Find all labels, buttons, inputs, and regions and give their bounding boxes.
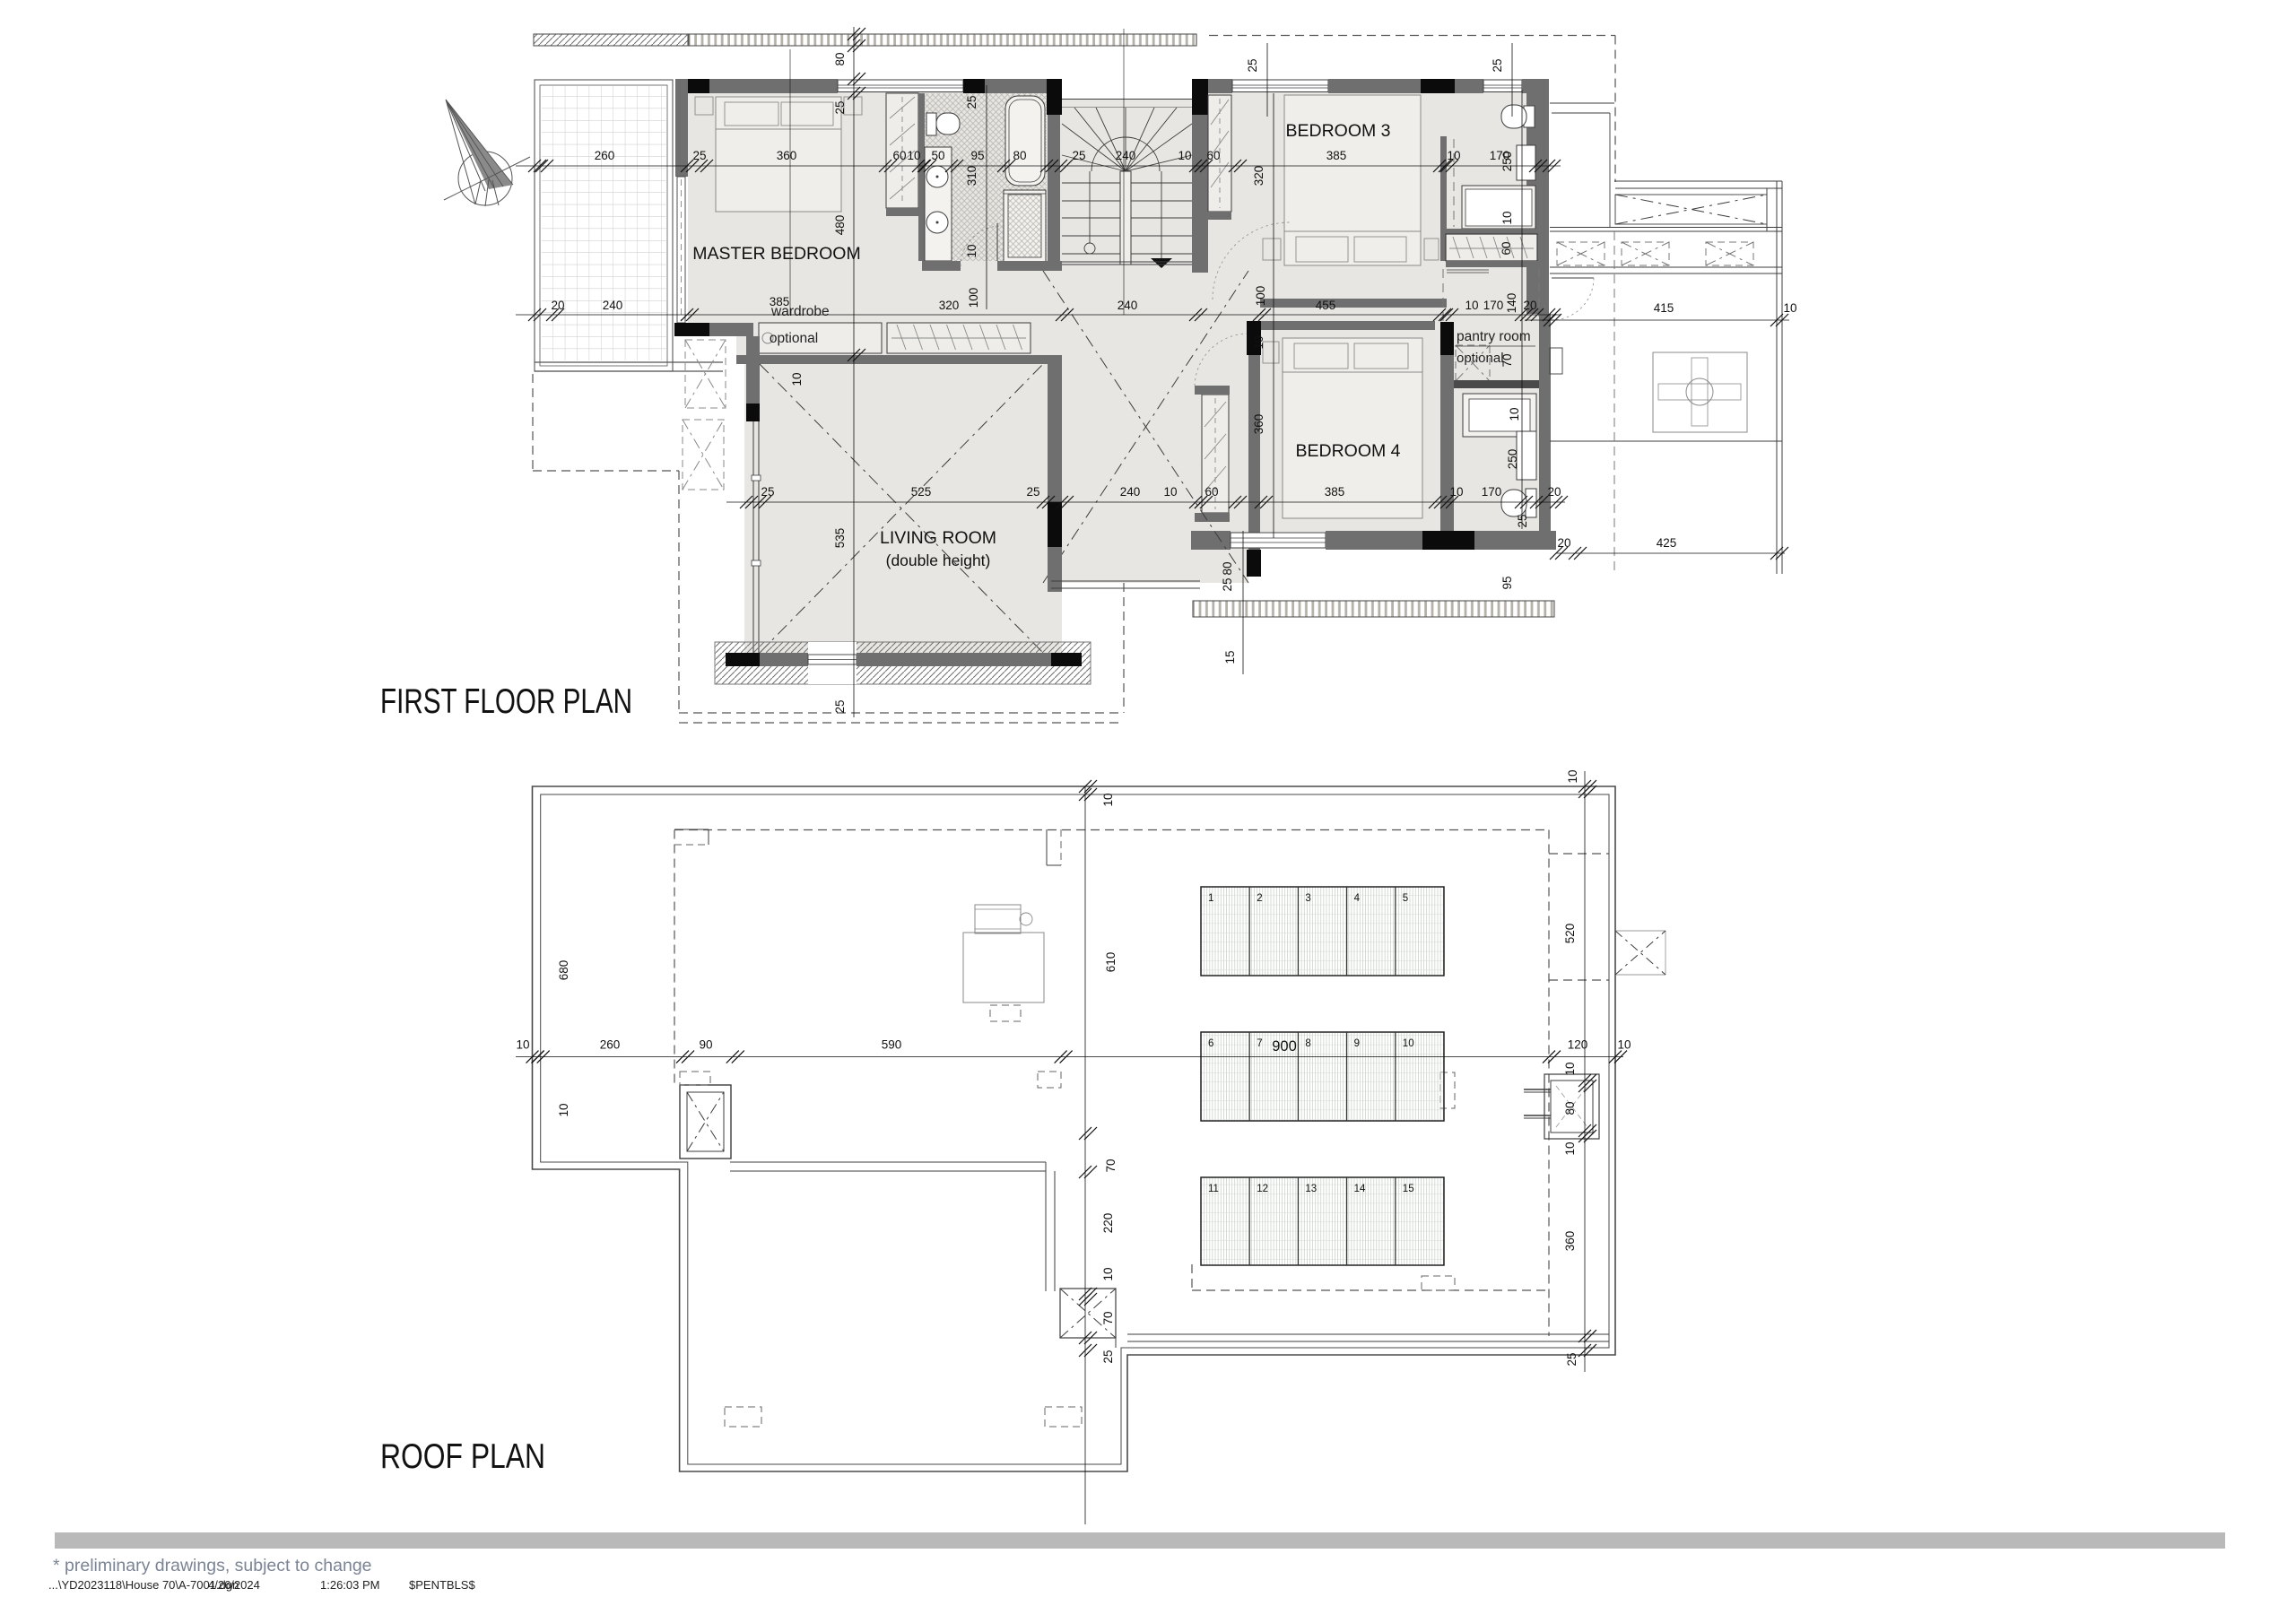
svg-text:25: 25 bbox=[761, 485, 774, 499]
svg-text:80: 80 bbox=[833, 52, 847, 65]
svg-text:60: 60 bbox=[1205, 485, 1218, 499]
svg-text:240: 240 bbox=[1118, 299, 1138, 312]
svg-text:80: 80 bbox=[1221, 561, 1234, 575]
svg-text:25: 25 bbox=[1221, 577, 1234, 591]
svg-text:385: 385 bbox=[1326, 149, 1347, 162]
svg-text:3: 3 bbox=[1305, 893, 1310, 904]
svg-text:70: 70 bbox=[1104, 1159, 1118, 1172]
svg-text:25: 25 bbox=[833, 100, 847, 114]
svg-text:10: 10 bbox=[1617, 1038, 1631, 1052]
svg-text:10: 10 bbox=[907, 149, 920, 162]
svg-text:10: 10 bbox=[1447, 149, 1460, 162]
svg-text:10: 10 bbox=[1566, 769, 1579, 783]
svg-text:680: 680 bbox=[557, 960, 570, 981]
svg-text:95: 95 bbox=[970, 149, 984, 162]
svg-text:250: 250 bbox=[1500, 152, 1514, 172]
svg-text:11: 11 bbox=[1208, 1184, 1219, 1194]
svg-text:10: 10 bbox=[557, 1103, 570, 1116]
svg-text:240: 240 bbox=[1120, 485, 1141, 499]
svg-text:25: 25 bbox=[1026, 485, 1039, 499]
svg-text:25: 25 bbox=[833, 699, 847, 713]
svg-text:525: 525 bbox=[911, 485, 932, 499]
svg-text:1:26:03 PM: 1:26:03 PM bbox=[320, 1578, 380, 1592]
svg-text:LIVING ROOM: LIVING ROOM bbox=[880, 528, 996, 548]
svg-text:25: 25 bbox=[1101, 1350, 1115, 1363]
svg-text:* preliminary drawings, subjec: * preliminary drawings, subject to chang… bbox=[53, 1556, 372, 1575]
svg-text:170: 170 bbox=[1482, 485, 1502, 499]
svg-text:60: 60 bbox=[892, 149, 906, 162]
svg-text:9: 9 bbox=[1354, 1038, 1360, 1049]
svg-text:60: 60 bbox=[1500, 241, 1513, 255]
svg-text:7: 7 bbox=[1257, 1038, 1262, 1049]
svg-text:50: 50 bbox=[931, 149, 944, 162]
svg-text:590: 590 bbox=[882, 1038, 902, 1052]
svg-text:13: 13 bbox=[1305, 1184, 1317, 1194]
svg-text:360: 360 bbox=[1563, 1231, 1577, 1252]
svg-text:90: 90 bbox=[699, 1038, 712, 1052]
svg-text:optional: optional bbox=[770, 331, 818, 346]
svg-text:4: 4 bbox=[1354, 893, 1361, 904]
svg-text:10: 10 bbox=[516, 1038, 529, 1052]
svg-text:20: 20 bbox=[1557, 536, 1570, 550]
svg-text:455: 455 bbox=[1316, 299, 1336, 312]
svg-text:pantry room: pantry room bbox=[1457, 329, 1531, 344]
svg-text:25: 25 bbox=[692, 149, 706, 162]
svg-text:240: 240 bbox=[603, 299, 623, 312]
svg-text:80: 80 bbox=[1563, 1101, 1577, 1115]
svg-text:240: 240 bbox=[1116, 149, 1136, 162]
svg-text:250: 250 bbox=[1506, 449, 1519, 470]
svg-text:MASTER BEDROOM: MASTER BEDROOM bbox=[692, 244, 860, 264]
svg-text:10: 10 bbox=[1163, 485, 1177, 499]
svg-text:320: 320 bbox=[939, 299, 960, 312]
svg-text:25: 25 bbox=[1565, 1352, 1578, 1366]
svg-text:70: 70 bbox=[1101, 1311, 1115, 1324]
svg-text:20: 20 bbox=[1547, 485, 1561, 499]
svg-text:1: 1 bbox=[1208, 893, 1213, 904]
svg-text:20: 20 bbox=[1523, 299, 1536, 312]
svg-text:360: 360 bbox=[1252, 414, 1265, 435]
svg-text:520: 520 bbox=[1563, 924, 1577, 944]
svg-text:FIRST FLOOR PLAN: FIRST FLOOR PLAN bbox=[380, 682, 632, 721]
svg-text:10: 10 bbox=[1101, 793, 1115, 806]
svg-text:80: 80 bbox=[1013, 149, 1026, 162]
svg-text:385: 385 bbox=[1325, 485, 1345, 499]
svg-text:10: 10 bbox=[1178, 149, 1191, 162]
svg-text:25: 25 bbox=[1072, 149, 1085, 162]
svg-text:260: 260 bbox=[595, 149, 615, 162]
svg-text:5: 5 bbox=[1403, 893, 1408, 904]
svg-text:320: 320 bbox=[1252, 166, 1265, 187]
svg-text:$PENTBLS$: $PENTBLS$ bbox=[409, 1578, 475, 1592]
svg-text:100: 100 bbox=[967, 288, 980, 308]
svg-text:535: 535 bbox=[833, 528, 847, 549]
svg-text:10: 10 bbox=[965, 244, 978, 257]
svg-text:10: 10 bbox=[1563, 1062, 1577, 1075]
svg-text:15: 15 bbox=[1223, 650, 1237, 664]
svg-text:25: 25 bbox=[1516, 514, 1529, 527]
svg-text:20: 20 bbox=[551, 299, 564, 312]
svg-text:15: 15 bbox=[1403, 1184, 1414, 1194]
svg-text:2: 2 bbox=[1257, 893, 1262, 904]
svg-text:14: 14 bbox=[1354, 1184, 1366, 1194]
svg-text:310: 310 bbox=[965, 166, 978, 187]
svg-text:ROOF PLAN: ROOF PLAN bbox=[380, 1437, 545, 1476]
svg-text:4/26/2024: 4/26/2024 bbox=[208, 1578, 260, 1592]
svg-text:6: 6 bbox=[1208, 1038, 1213, 1049]
svg-text:10: 10 bbox=[790, 372, 804, 386]
svg-text:10: 10 bbox=[1252, 335, 1265, 349]
svg-text:25: 25 bbox=[1491, 58, 1504, 72]
svg-text:optional: optional bbox=[1457, 351, 1504, 366]
svg-text:480: 480 bbox=[833, 215, 847, 236]
svg-text:95: 95 bbox=[1500, 576, 1514, 589]
svg-text:385: 385 bbox=[770, 295, 790, 308]
svg-text:170: 170 bbox=[1483, 299, 1504, 312]
svg-text:260: 260 bbox=[600, 1038, 621, 1052]
svg-text:12: 12 bbox=[1257, 1184, 1268, 1194]
svg-text:610: 610 bbox=[1104, 952, 1118, 973]
svg-text:900: 900 bbox=[1272, 1038, 1297, 1055]
svg-text:BEDROOM 4: BEDROOM 4 bbox=[1295, 441, 1400, 461]
svg-text:(double height): (double height) bbox=[886, 551, 991, 569]
svg-text:25: 25 bbox=[1246, 58, 1259, 72]
svg-text:25: 25 bbox=[965, 95, 978, 108]
svg-text:220: 220 bbox=[1101, 1213, 1115, 1234]
svg-text:70: 70 bbox=[1500, 353, 1514, 367]
svg-text:BEDROOM 3: BEDROOM 3 bbox=[1285, 121, 1390, 141]
svg-text:10: 10 bbox=[1500, 211, 1514, 224]
svg-text:10: 10 bbox=[1403, 1038, 1414, 1049]
svg-text:10: 10 bbox=[1508, 407, 1521, 421]
svg-text:415: 415 bbox=[1654, 301, 1674, 315]
svg-text:360: 360 bbox=[777, 149, 797, 162]
svg-text:10: 10 bbox=[1101, 1267, 1115, 1280]
svg-text:10: 10 bbox=[1449, 485, 1463, 499]
svg-text:10: 10 bbox=[1783, 301, 1796, 315]
svg-text:8: 8 bbox=[1305, 1038, 1310, 1049]
svg-text:60: 60 bbox=[1206, 149, 1220, 162]
svg-text:100: 100 bbox=[1254, 286, 1267, 307]
svg-text:425: 425 bbox=[1657, 536, 1677, 550]
svg-text:10: 10 bbox=[1563, 1141, 1577, 1155]
svg-text:10: 10 bbox=[1465, 299, 1478, 312]
svg-text:140: 140 bbox=[1505, 293, 1518, 314]
